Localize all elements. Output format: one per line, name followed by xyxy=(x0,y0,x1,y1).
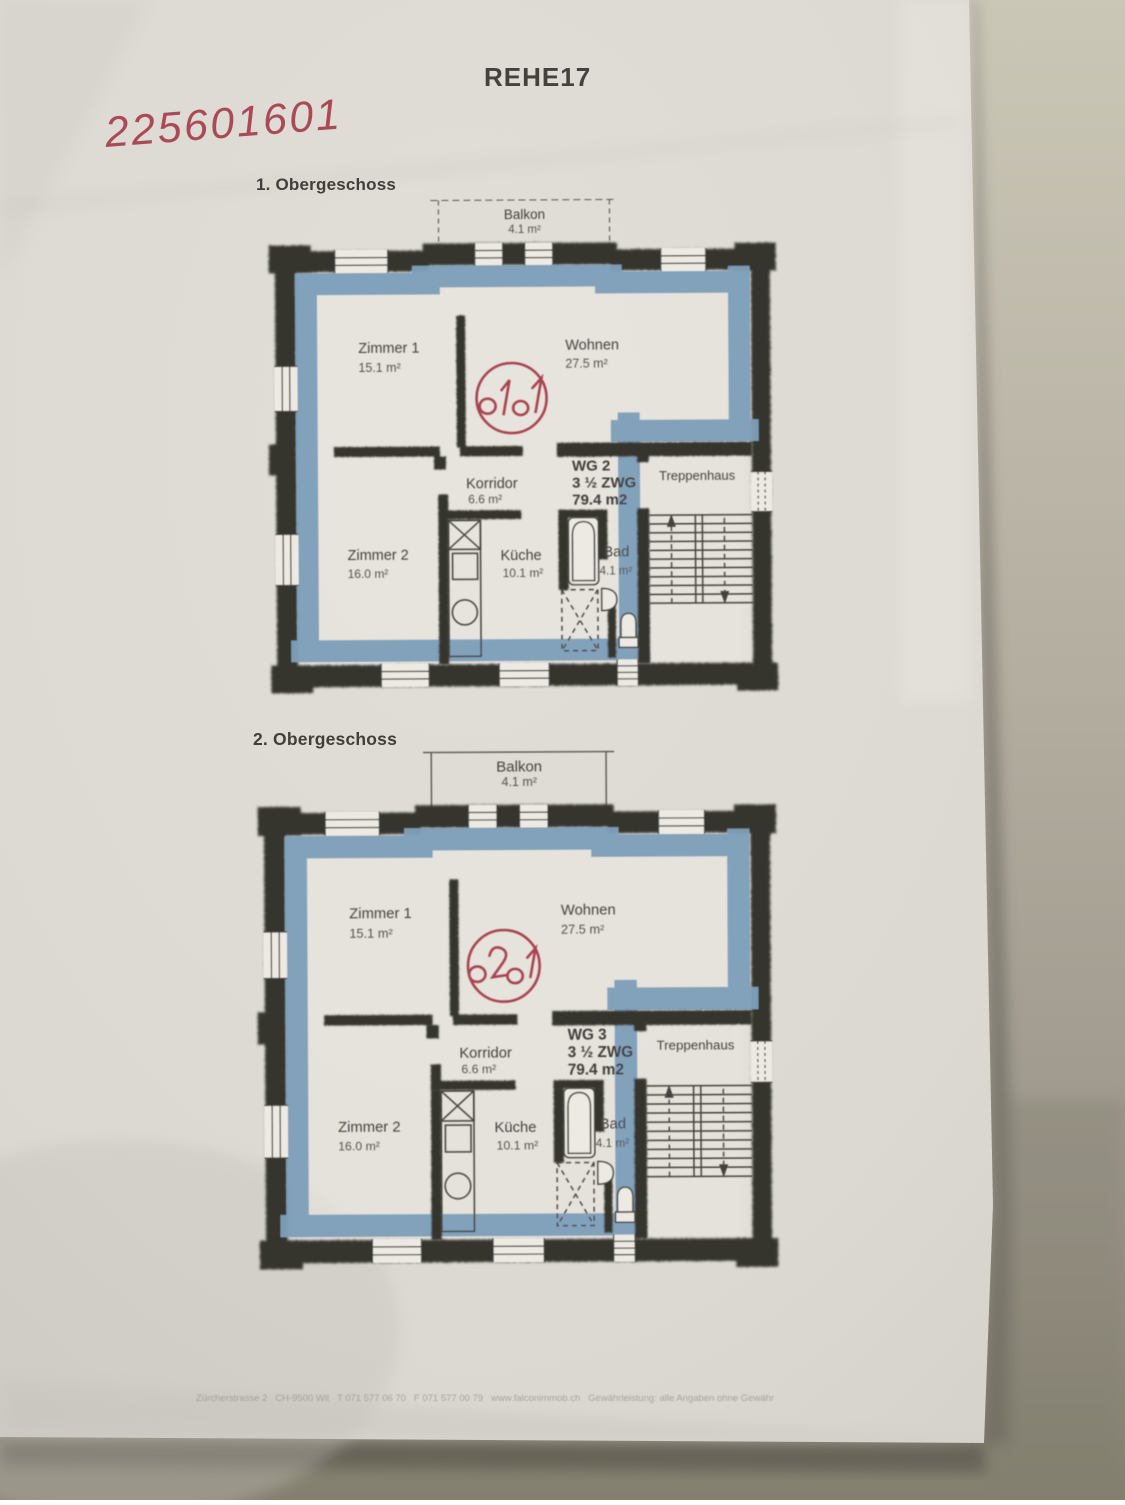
svg-text:Balkon: Balkon xyxy=(504,207,545,222)
svg-text:15.1 m²: 15.1 m² xyxy=(349,926,393,941)
svg-text:6.6 m²: 6.6 m² xyxy=(468,492,502,506)
svg-text:Treppenhaus: Treppenhaus xyxy=(657,1037,735,1052)
svg-text:Balkon: Balkon xyxy=(496,759,542,776)
svg-text:27.5 m²: 27.5 m² xyxy=(565,356,607,370)
svg-text:79.4 m2: 79.4 m2 xyxy=(568,1062,624,1079)
svg-text:Bad: Bad xyxy=(603,544,629,560)
svg-text:Zürcherstrasse 2 CH-9500 Wil: Zürcherstrasse 2 CH-9500 Wil T 071 577 0… xyxy=(196,1393,774,1404)
svg-text:Treppenhaus: Treppenhaus xyxy=(659,468,736,483)
svg-text:10.1 m²: 10.1 m² xyxy=(503,566,544,580)
svg-text:16.0 m²: 16.0 m² xyxy=(348,567,389,581)
svg-text:Korridor: Korridor xyxy=(466,476,518,492)
svg-text:6.6 m²: 6.6 m² xyxy=(461,1062,496,1076)
svg-text:WG 2: WG 2 xyxy=(572,457,610,474)
svg-text:4.1 m²: 4.1 m² xyxy=(508,224,541,236)
svg-text:27.5 m²: 27.5 m² xyxy=(561,921,605,936)
svg-text:79.4 m2: 79.4 m2 xyxy=(572,491,627,508)
svg-text:Küche: Küche xyxy=(494,1120,536,1136)
svg-text:3 ½ ZWG: 3 ½ ZWG xyxy=(572,474,636,491)
svg-text:REHE17: REHE17 xyxy=(484,62,591,92)
svg-text:10.1 m²: 10.1 m² xyxy=(497,1138,539,1152)
svg-text:Küche: Küche xyxy=(500,548,541,564)
svg-text:15.1 m²: 15.1 m² xyxy=(358,361,400,375)
svg-text:Korridor: Korridor xyxy=(459,1046,512,1062)
svg-text:1. Obergeschoss: 1. Obergeschoss xyxy=(256,175,396,194)
svg-text:Wohnen: Wohnen xyxy=(565,337,619,353)
svg-text:2. Obergeschoss: 2. Obergeschoss xyxy=(253,729,397,749)
svg-text:4.1 m²: 4.1 m² xyxy=(502,775,538,789)
svg-text:3 ½ ZWG: 3 ½ ZWG xyxy=(568,1044,634,1061)
svg-text:Zimmer 1: Zimmer 1 xyxy=(358,341,419,357)
svg-text:Zimmer 2: Zimmer 2 xyxy=(347,548,408,564)
svg-text:Zimmer 2: Zimmer 2 xyxy=(338,1120,401,1136)
svg-text:4.1 m²: 4.1 m² xyxy=(596,1136,630,1150)
svg-text:Bad: Bad xyxy=(600,1116,626,1132)
svg-text:4.1 m²: 4.1 m² xyxy=(600,565,633,577)
svg-text:Zimmer 1: Zimmer 1 xyxy=(349,906,412,922)
svg-text:Wohnen: Wohnen xyxy=(561,903,616,919)
svg-text:16.0 m²: 16.0 m² xyxy=(338,1139,380,1153)
svg-text:WG 3: WG 3 xyxy=(568,1027,607,1044)
